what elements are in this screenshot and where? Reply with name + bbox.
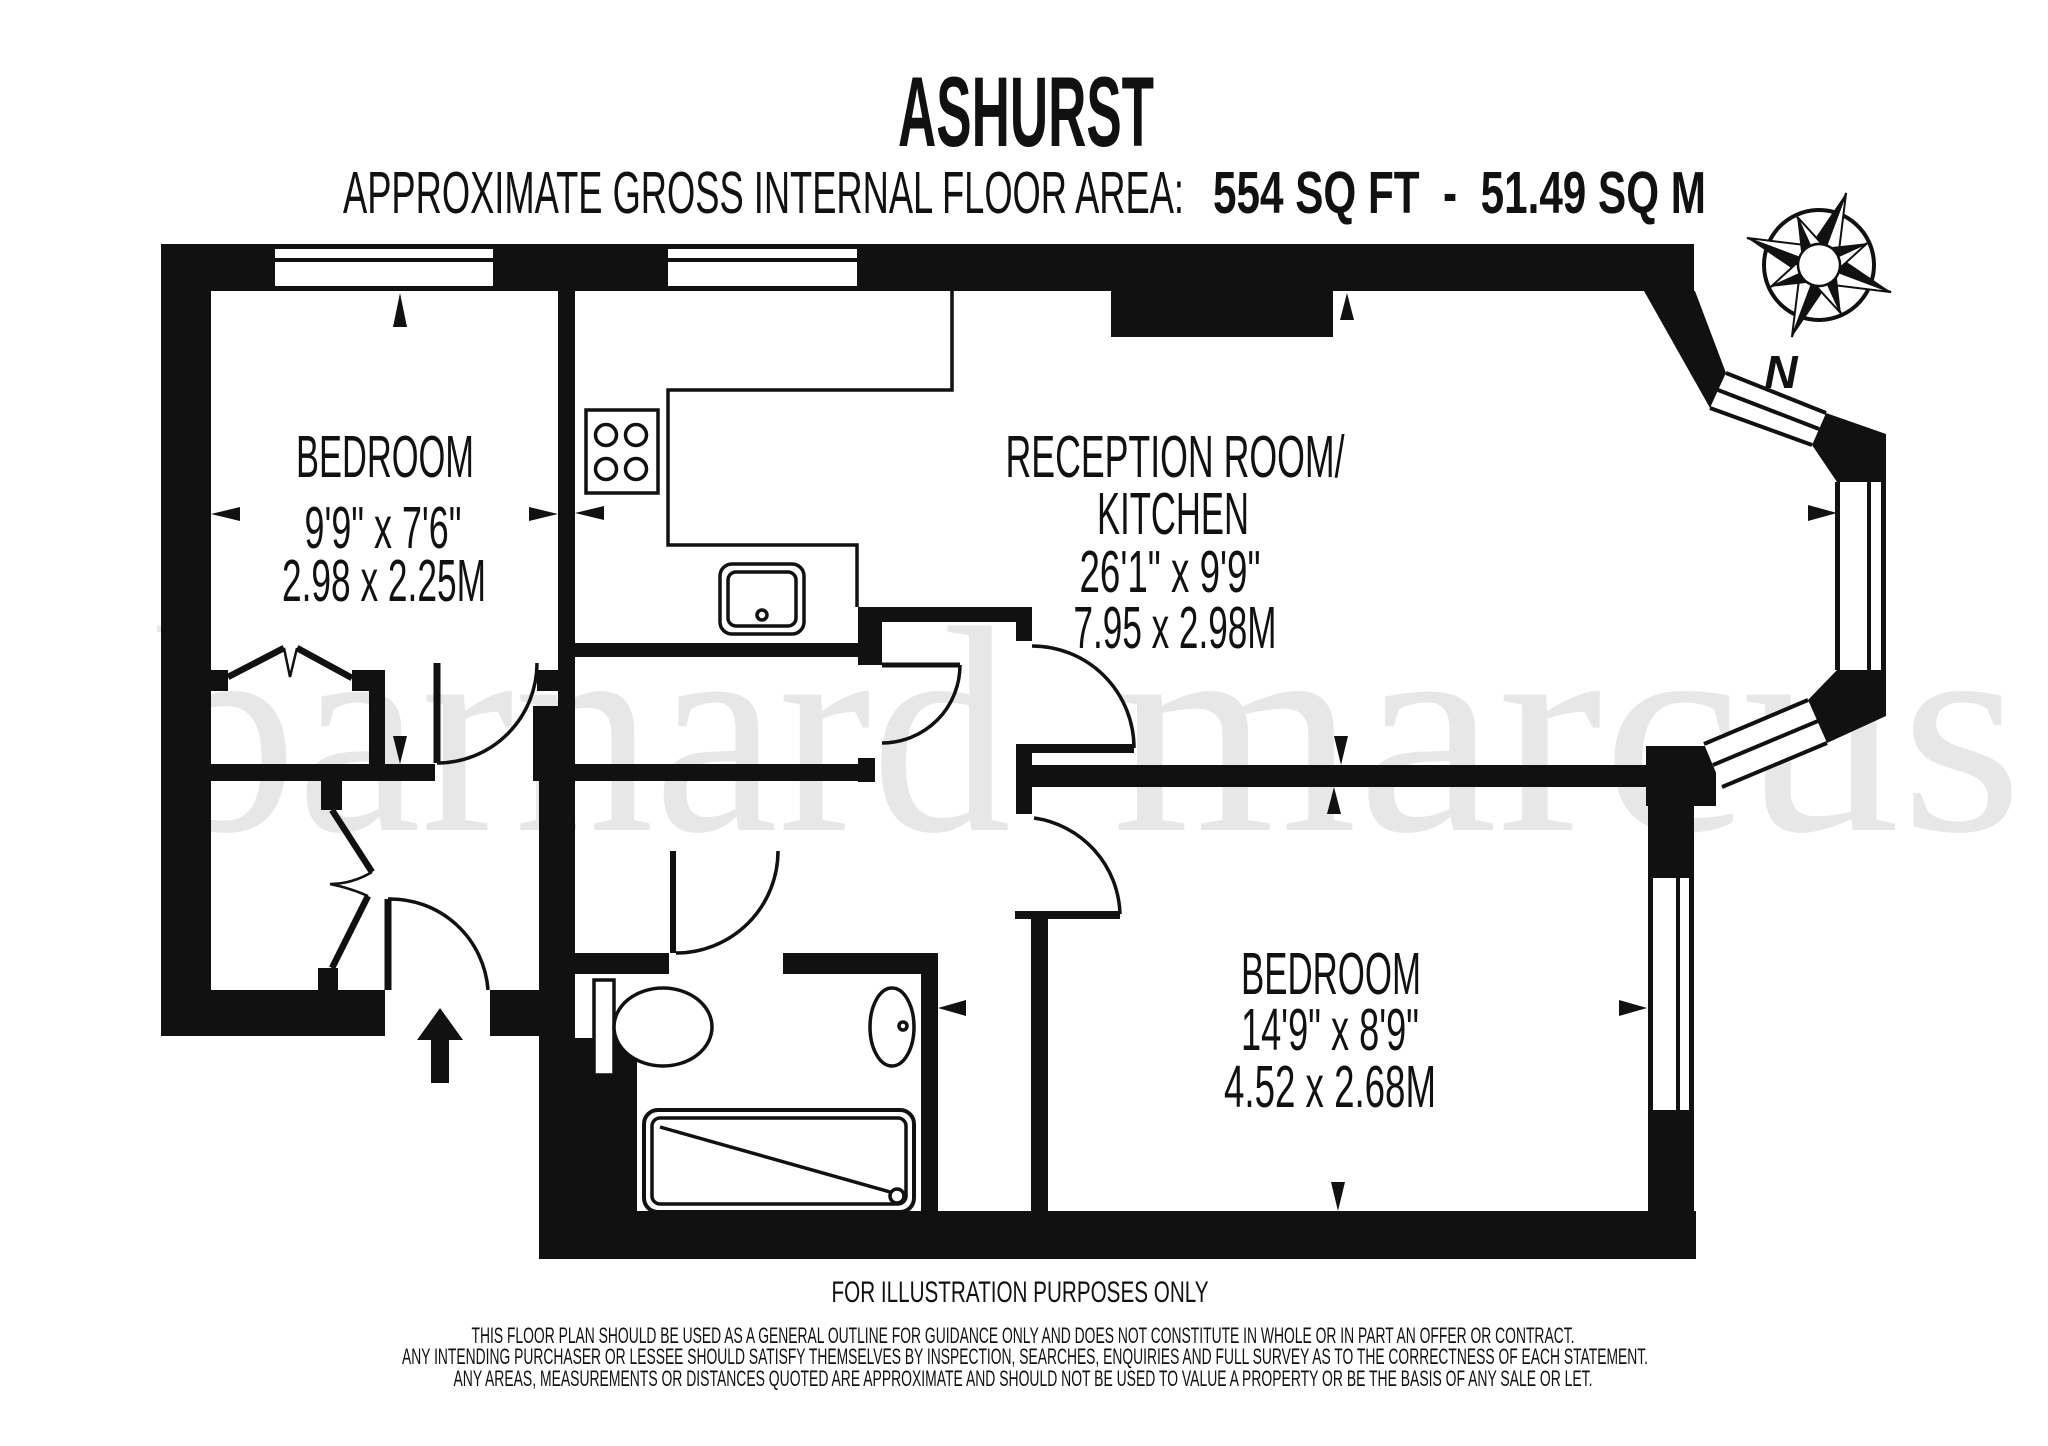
svg-text:ASHURST: ASHURST: [898, 56, 1154, 167]
svg-text:4.52 x 2.68M: 4.52 x 2.68M: [1224, 1054, 1436, 1120]
svg-text:N: N: [1764, 346, 1798, 398]
svg-text:FOR ILLUSTRATION PURPOSES ONLY: FOR ILLUSTRATION PURPOSES ONLY: [832, 1276, 1209, 1309]
svg-text:BEDROOM: BEDROOM: [296, 424, 474, 490]
svg-text:2.98 x 2.25M: 2.98 x 2.25M: [282, 548, 486, 614]
svg-text:7.95 x 2.98M: 7.95 x 2.98M: [1074, 595, 1277, 661]
svg-text:ANY AREAS, MEASUREMENTS OR DIS: ANY AREAS, MEASUREMENTS OR DISTANCES QUO…: [454, 1366, 1593, 1391]
svg-text:APPROXIMATE GROSS INTERNAL FLO: APPROXIMATE GROSS INTERNAL FLOOR AREA:: [343, 160, 1184, 226]
svg-text:554 SQ FT - 51.49 SQ M: 554 SQ FT - 51.49 SQ M: [1213, 160, 1706, 226]
svg-text:KITCHEN: KITCHEN: [1097, 481, 1249, 547]
